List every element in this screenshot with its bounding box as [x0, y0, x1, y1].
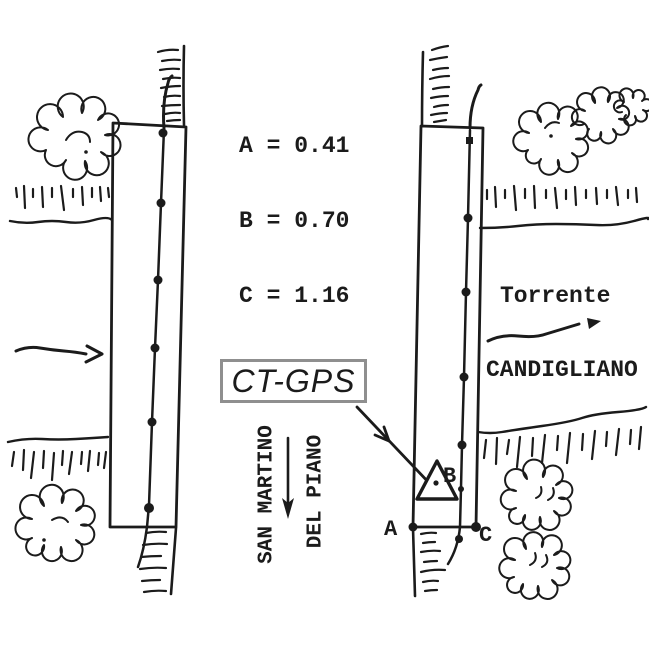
- measurement-values: A = 0.41 B = 0.70 C = 1.16: [239, 84, 349, 359]
- survey-point-dot: [157, 199, 166, 208]
- bush-sketch-lower-right: [499, 532, 570, 599]
- left-road-edge-bottom: [171, 528, 176, 594]
- bush-sketch-lower-left: [15, 485, 94, 561]
- left-bridge-plan: [110, 46, 186, 594]
- measurement-c: C = 1.16: [239, 284, 349, 309]
- bank-hatch-ticks: [487, 186, 637, 210]
- point-label-c: C: [479, 523, 492, 548]
- bush-sketch-upper-right: [513, 87, 649, 174]
- bush-inner-dot: [549, 134, 553, 138]
- right-road-hatch-bottom: [421, 533, 445, 591]
- measurement-b: B = 0.70: [239, 209, 349, 234]
- bush-sketch-mid-right: [501, 460, 573, 530]
- bank-hatch-ticks: [484, 427, 641, 467]
- right-riverbank-lower: [478, 407, 646, 467]
- station-center-dot: [433, 480, 438, 485]
- bank-waterline: [10, 218, 112, 223]
- left-bridge-deck: [110, 123, 186, 527]
- flow-arrow-head: [86, 346, 102, 362]
- left-riverbank-upper: [10, 186, 112, 223]
- survey-point-dot-small: [458, 486, 464, 492]
- survey-point-dot: [455, 535, 463, 543]
- bush-inner-dot: [84, 150, 88, 154]
- flow-arrow-squiggle: [16, 347, 86, 354]
- river-name-word2: CANDIGLIANO: [486, 357, 638, 383]
- bush-inner-curl: [52, 517, 68, 522]
- bush-outline: [572, 87, 629, 143]
- survey-point-dot: [151, 344, 160, 353]
- ct-gps-callout-box: CT-GPS: [220, 359, 367, 403]
- pointer-arrow-line: [357, 407, 433, 487]
- right-road-edge-bottom: [413, 528, 415, 596]
- survey-point-dot: [460, 373, 469, 382]
- bush-inner-dot: [42, 538, 46, 542]
- bush-inner-curl: [66, 132, 90, 142]
- bush-inner-curl: [545, 122, 559, 128]
- ct-gps-label: CT-GPS: [232, 363, 356, 400]
- bush-outline: [513, 103, 588, 175]
- right-road-edge-top: [422, 52, 423, 126]
- bush-inner-curl: [536, 487, 554, 500]
- survey-point-dot: [144, 503, 154, 513]
- bank-waterline: [480, 218, 649, 228]
- bush-sketch-upper-left: [28, 94, 120, 180]
- right-wingwall-curve-top: [470, 85, 481, 128]
- river-flow-arrow-icon: [488, 318, 601, 341]
- survey-point-dot: [148, 418, 157, 427]
- survey-point-dot: [462, 288, 471, 297]
- bush-outline: [499, 532, 570, 599]
- bush-outline: [15, 485, 94, 561]
- bank-hatch-ticks: [12, 450, 106, 480]
- flow-arrow-left-icon: [16, 346, 102, 362]
- bank-waterline: [8, 437, 108, 442]
- survey-point-square: [466, 137, 473, 144]
- measurement-a: A = 0.41: [239, 134, 349, 159]
- left-riverbank-lower: [8, 437, 108, 480]
- river-name-word1: Torrente: [500, 283, 610, 309]
- survey-point-dot: [159, 129, 168, 138]
- right-bridge-plan: [409, 46, 484, 596]
- road-destination-word2: DEL PIANO: [305, 435, 328, 549]
- bush-outline: [501, 460, 573, 530]
- survey-point-dot: [458, 441, 467, 450]
- left-road-edge-top: [184, 46, 185, 125]
- road-direction-arrow-icon: [282, 438, 294, 519]
- flow-arrow-head: [587, 318, 601, 329]
- bank-hatch-ticks: [16, 186, 109, 210]
- bush-inner-curl: [530, 553, 547, 567]
- survey-point-dot: [464, 214, 473, 223]
- right-riverbank-upper: [480, 186, 649, 228]
- bank-waterline: [478, 407, 646, 433]
- flow-arrow-squiggle: [488, 324, 579, 341]
- right-road-hatch-top: [430, 46, 449, 122]
- left-road-hatch-top: [158, 50, 180, 121]
- bridge-survey-sketch: A = 0.41 B = 0.70 C = 1.16 CT-GPS Torren…: [0, 0, 649, 649]
- bush-outline: [28, 94, 120, 180]
- ctgps-pointer-arrow-icon: [357, 407, 433, 487]
- point-label-a: A: [384, 517, 397, 542]
- road-destination-word1: SAN MARTINO: [256, 424, 279, 566]
- point-label-b: B: [443, 464, 456, 489]
- survey-point-dot: [154, 276, 163, 285]
